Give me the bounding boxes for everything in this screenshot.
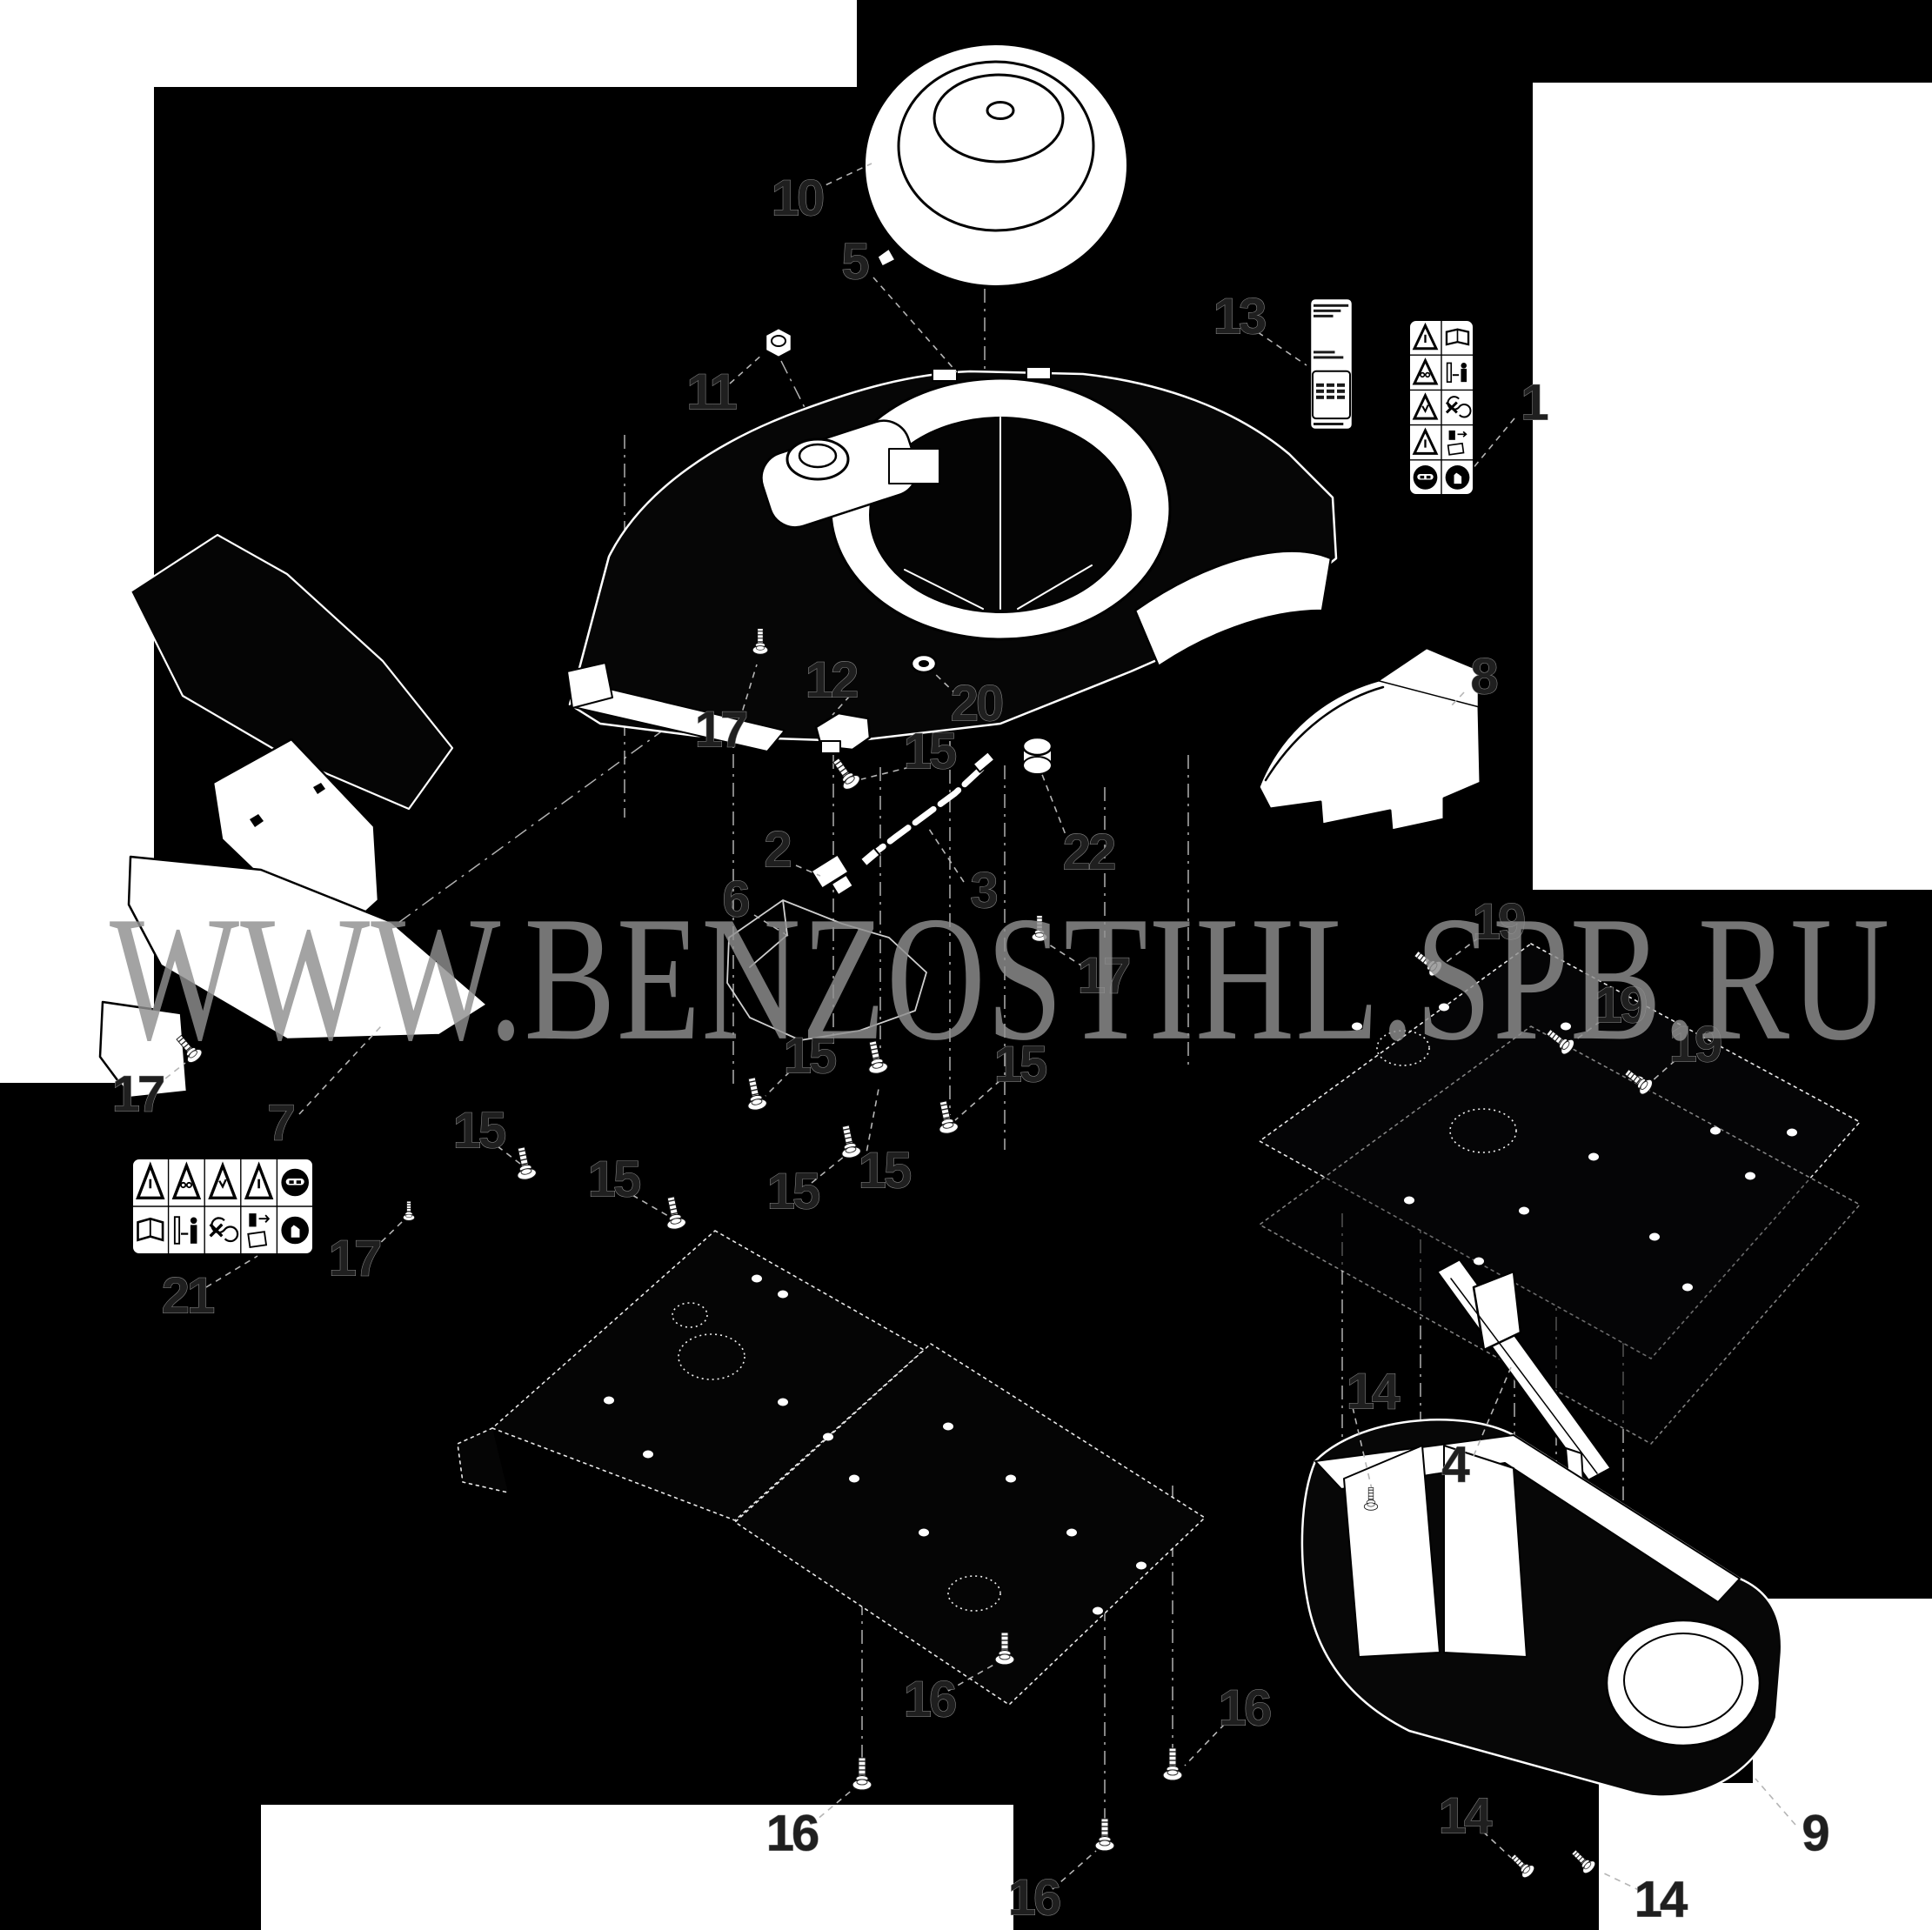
pictogram-glove-icon [1446,465,1470,490]
part-22-knob [1023,738,1052,774]
callout-5: 5 [841,233,868,290]
pictogram-glove-icon [281,1217,309,1245]
plate-hole-dot [1519,1207,1529,1215]
plate-hole-dot [778,1399,788,1406]
plate-hole-dot [1682,1284,1693,1292]
callout-22: 22 [1063,824,1114,880]
callout-15: 15 [588,1151,640,1207]
callout-10: 10 [772,170,823,226]
callout-1: 1 [1521,374,1548,431]
part-11-cap-nut [765,328,792,357]
pictogram-book-icon [1447,330,1468,344]
callout-8: 8 [1470,648,1497,705]
page-tile [0,0,154,1083]
page-tile [1533,83,1932,890]
callout-17: 17 [1078,947,1129,1004]
callout-15: 15 [453,1102,505,1159]
callout-16: 16 [904,1671,956,1727]
pictogram-book-icon [138,1219,164,1239]
plate-hole-dot [1561,1023,1571,1031]
plate-hole-dot [1006,1475,1016,1483]
callout-9: 9 [1802,1805,1828,1861]
plate-hole-dot [1136,1562,1146,1570]
plate-hole-dot [1474,1258,1484,1266]
plate-hole-dot [1352,1023,1362,1031]
callout-17: 17 [112,1065,164,1122]
plate-hole-dot [1787,1129,1797,1137]
callout-11: 11 [686,364,736,420]
diagram-stage: 1234567891011121314141415151515151515161… [0,0,1932,1930]
callout-21: 21 [162,1267,214,1324]
exploded-parts-diagram: 1234567891011121314141415151515151515161… [0,0,1932,1930]
page-tile [0,0,857,87]
callout-14: 14 [1635,1871,1688,1927]
callout-15: 15 [859,1142,911,1199]
callout-19: 19 [1669,1016,1721,1072]
plate-hole-dot [849,1475,859,1483]
callout-16: 16 [1008,1869,1060,1926]
plate-hole-dot [919,1529,929,1537]
callout-13: 13 [1213,288,1266,344]
callout-15: 15 [767,1163,819,1219]
part-20-grommet [912,655,936,672]
callout-15: 15 [904,723,956,779]
part-21-warning-label [132,1159,313,1254]
callout-16: 16 [766,1805,819,1861]
part-13-barcode-sticker [1310,298,1353,430]
plate-hole-dot [1439,1004,1449,1012]
callout-3: 3 [970,862,997,918]
callout-15: 15 [994,1036,1046,1092]
plate-hole-dot [1093,1607,1103,1615]
callout-17: 17 [695,701,746,758]
plate-hole-dot [778,1291,788,1299]
pictogram-goggles-icon [1414,465,1438,490]
plate-hole-dot [1588,1153,1599,1161]
callout-14: 14 [1347,1363,1400,1419]
plate-hole-dot [1404,1197,1414,1205]
plate-hole-dot [1745,1172,1755,1180]
callout-20: 20 [951,675,1002,731]
callout-19: 19 [1594,977,1647,1033]
part-10-dome-cover [864,43,1128,287]
callout-17: 17 [329,1230,380,1286]
plate-hole-dot [1066,1529,1077,1537]
plate-hole-dot [943,1423,953,1431]
plate-hole-dot [643,1451,653,1459]
callout-4: 4 [1441,1436,1469,1493]
callout-6: 6 [722,871,749,927]
part-1-warning-label [1409,320,1474,495]
callout-19: 19 [1473,893,1525,950]
callout-16: 16 [1219,1680,1271,1736]
plate-hole-dot [752,1275,762,1283]
plate-hole-dot [823,1433,833,1441]
callout-12: 12 [806,651,857,708]
page-tile [261,1805,1013,1930]
callout-7: 7 [267,1094,293,1151]
pictogram-goggles-icon [281,1169,309,1197]
plate-hole-dot [1649,1233,1660,1241]
callout-15: 15 [784,1027,836,1084]
callout-2: 2 [764,821,790,878]
plate-hole-dot [604,1397,614,1405]
plate-hole-dot [1710,1127,1721,1135]
callout-14: 14 [1439,1787,1492,1844]
